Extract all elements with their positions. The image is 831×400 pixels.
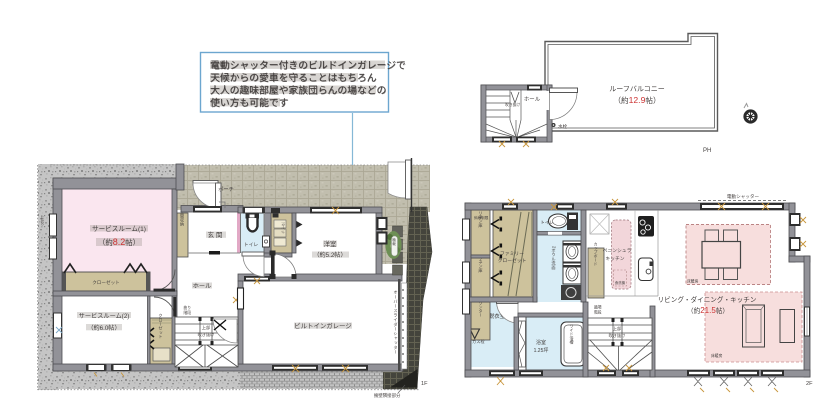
svg-text:電動シャッター付きのビルドインガレージで: 電動シャッター付きのビルドインガレージで: [210, 59, 406, 72]
svg-text:斜線制限: 斜線制限: [474, 215, 489, 220]
svg-text:トイレ: トイレ: [244, 243, 259, 248]
svg-text:床暖房: 床暖房: [687, 279, 699, 284]
svg-text:（約21.5帖）: （約21.5帖）: [687, 306, 729, 315]
svg-text:ワイド浴槽: ワイド浴槽: [570, 324, 575, 345]
svg-text:曲り: 曲り: [184, 305, 192, 310]
svg-text:オーバースライダーシャッター: オーバースライダーシャッター: [394, 290, 399, 355]
svg-text:PH: PH: [703, 148, 711, 154]
svg-text:植栽: 植栽: [391, 237, 396, 246]
svg-text:電動シャッター: 電動シャッター: [727, 193, 760, 200]
svg-text:サービスルーム(2): サービスルーム(2): [79, 312, 130, 320]
svg-text:踊場: 踊場: [594, 305, 602, 310]
svg-text:クローゼット: クローゼット: [159, 313, 164, 339]
svg-text:（約8.2帖）: （約8.2帖）: [98, 237, 140, 247]
svg-text:天候からの愛車を守ることはもちろん: 天候からの愛車を守ることはもちろん: [210, 71, 377, 84]
svg-text:（約5.2帖）: （約5.2帖）: [313, 251, 346, 259]
svg-text:ルーフバルコニー: ルーフバルコニー: [609, 85, 664, 93]
svg-text:ガス栓: ガス栓: [472, 338, 485, 345]
svg-text:階段: 階段: [184, 310, 192, 315]
svg-text:吹き抜け: 吹き抜け: [198, 331, 215, 338]
svg-text:ペニンシュラ: ペニンシュラ: [603, 248, 632, 254]
svg-text:2F: 2F: [806, 381, 813, 387]
svg-text:1F: 1F: [421, 381, 428, 387]
svg-text:ホール: ホール: [524, 96, 541, 103]
svg-text:キッチン: キッチン: [605, 256, 624, 262]
svg-text:（約12.9帖）: （約12.9帖）: [613, 95, 660, 105]
svg-text:ビルトインガレージ: ビルトインガレージ: [294, 321, 352, 330]
svg-text:2ボウル洗面: 2ボウル洗面: [551, 246, 557, 271]
svg-text:浴室: 浴室: [536, 339, 546, 346]
svg-text:ホール: ホール: [193, 283, 212, 290]
svg-text:クローゼット: クローゼット: [92, 279, 120, 286]
svg-text:食洗機: 食洗機: [615, 280, 626, 285]
svg-text:使い方も可能です: 使い方も可能です: [210, 96, 289, 109]
svg-text:（約6.0帖）: （約6.0帖）: [87, 324, 120, 332]
svg-text:ポーチ: ポーチ: [218, 185, 234, 193]
svg-text:玄関: 玄関: [208, 230, 225, 239]
svg-text:1.25坪: 1.25坪: [534, 347, 549, 354]
svg-text:洋室: 洋室: [324, 239, 337, 248]
svg-text:吹き抜け: 吹き抜け: [609, 332, 626, 339]
svg-text:床暖房: 床暖房: [711, 353, 723, 358]
svg-text:16520: 16520: [40, 216, 44, 226]
svg-text:トイレ: トイレ: [540, 220, 553, 225]
svg-text:水栓: 水栓: [558, 123, 568, 130]
svg-text:上部: 上部: [613, 325, 621, 332]
svg-text:サービスルーム(1): サービスルーム(1): [92, 224, 146, 233]
svg-text:ファミリー: ファミリー: [500, 251, 524, 257]
svg-text:カップボード: カップボード: [594, 242, 599, 266]
svg-text:上部: 上部: [202, 324, 210, 331]
svg-text:吹き抜け: 吹き抜け: [505, 102, 520, 107]
svg-text:擁壁隣接部分: 擁壁隣接部分: [374, 392, 401, 399]
svg-text:リビング・ダイニング・キッチン: リビング・ダイニング・キッチン: [658, 295, 757, 304]
svg-text:大人の趣味部屋や家族団らんの場などの: 大人の趣味部屋や家族団らんの場などの: [210, 84, 386, 97]
svg-text:階段: 階段: [594, 310, 602, 315]
